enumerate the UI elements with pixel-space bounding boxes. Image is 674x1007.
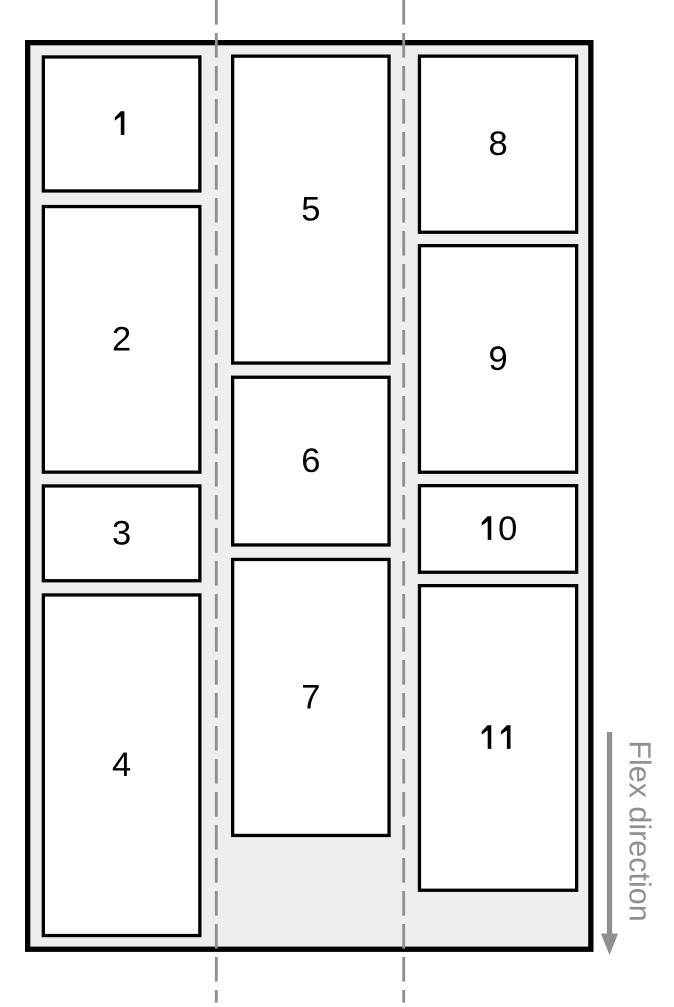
svg-text:Flex direction: Flex direction: [623, 740, 657, 921]
svg-text:0: 0: [498, 510, 517, 548]
svg-text:4: 4: [112, 746, 131, 784]
svg-text:8: 8: [489, 125, 508, 163]
svg-text:3: 3: [112, 514, 131, 552]
svg-text:9: 9: [489, 340, 508, 378]
svg-text:5: 5: [301, 191, 320, 229]
svg-text:2: 2: [112, 320, 131, 358]
svg-text:7: 7: [301, 678, 320, 716]
svg-text:6: 6: [301, 442, 320, 480]
